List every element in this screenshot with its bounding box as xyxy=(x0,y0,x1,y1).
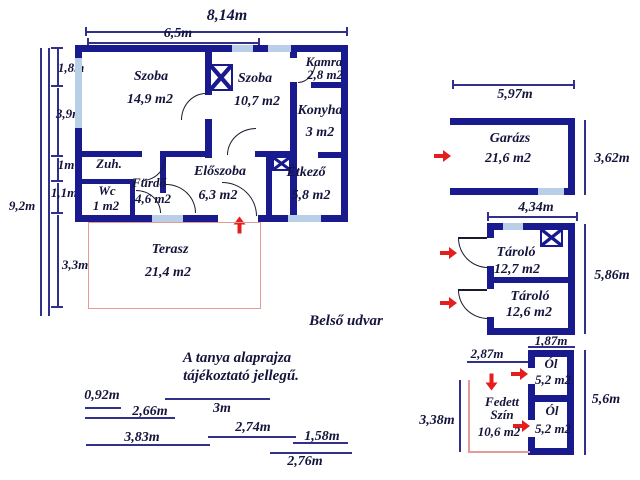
room-area: 5,8 m2 xyxy=(292,189,331,204)
dim-line xyxy=(165,398,270,400)
window xyxy=(75,58,82,128)
dim-tick xyxy=(85,27,87,36)
entrance-arrow-icon xyxy=(440,247,457,259)
site-dim: 2,76m xyxy=(287,455,322,470)
dim-line xyxy=(85,407,121,409)
dim-line xyxy=(270,452,352,454)
dim-line xyxy=(86,444,210,446)
dim-tick xyxy=(51,85,63,87)
door-arc xyxy=(458,238,488,268)
shed-height-dim: 3,38m xyxy=(419,414,454,429)
storage-wall-middle xyxy=(494,277,568,283)
chimney-icon xyxy=(540,228,563,247)
dim-line xyxy=(87,42,260,44)
dim-width-total: 8,14m xyxy=(207,8,247,25)
room-area: 5,2 m2 xyxy=(535,422,571,436)
dim-left-seg: 3,3m xyxy=(62,258,88,272)
door-arc xyxy=(227,128,256,155)
dim-line xyxy=(584,120,586,195)
dim-tick xyxy=(346,27,348,36)
dim-tick xyxy=(51,306,63,308)
room-area: 1 m2 xyxy=(93,199,119,213)
dim-line xyxy=(85,417,175,419)
dim-left-seg: 1,1m xyxy=(51,186,77,200)
note-line2: tájékoztató jellegű. xyxy=(183,369,299,385)
room-label: Zuh. xyxy=(96,157,122,171)
garage-height-dim: 3,62m xyxy=(594,152,629,167)
storage-wall-left xyxy=(487,266,494,289)
floor-plan: 8,14m 6,5m 9,2m 1,8m 3,9m 1m 1,1m 3,3m xyxy=(0,0,640,480)
room-label: Garázs xyxy=(490,132,530,147)
garage-width-dim: 5,97m xyxy=(497,88,532,103)
shed-outline xyxy=(468,451,530,453)
dim-line xyxy=(85,31,348,33)
dim-line xyxy=(208,436,296,438)
storage-height-dim: 5,86m xyxy=(594,269,629,284)
dim-line xyxy=(40,48,42,316)
courtyard-label: Belső udvar xyxy=(309,314,383,330)
window xyxy=(288,215,321,222)
wall-konyha-bottom xyxy=(318,152,341,158)
room-area: 6,3 m2 xyxy=(199,189,238,204)
window xyxy=(538,188,564,195)
dim-line xyxy=(48,48,50,316)
dim-height-total: 9,2m xyxy=(9,199,35,213)
entrance-arrow-icon xyxy=(511,368,528,380)
site-dim: 3m xyxy=(213,402,231,417)
room-label: Szoba xyxy=(238,72,272,87)
door-arc xyxy=(458,290,488,319)
room-label: Étkező xyxy=(287,166,326,181)
storage-width-dim: 4,34m xyxy=(518,201,553,216)
coop-wall-middle xyxy=(535,395,567,402)
room-area: 3 m2 xyxy=(306,126,334,141)
wall-bottom xyxy=(75,215,152,222)
room-area: 10,7 m2 xyxy=(234,95,280,110)
coop-wall-bottom xyxy=(528,448,574,455)
wall-kamra-bottom xyxy=(311,82,341,88)
chimney-icon xyxy=(209,64,233,91)
wall-interior xyxy=(290,52,297,58)
wall-interior xyxy=(165,151,212,157)
shed-width-dim: 2,87m xyxy=(471,347,504,361)
wall-top xyxy=(75,45,348,52)
storage-wall-left xyxy=(487,223,494,238)
room-label: Konyha xyxy=(297,104,342,119)
entrance-arrow-icon xyxy=(440,297,457,309)
dim-line xyxy=(584,224,586,334)
dim-line xyxy=(467,361,534,363)
storage-wall-right xyxy=(568,223,575,335)
room-area: 21,4 m2 xyxy=(145,266,191,281)
dim-line xyxy=(452,84,575,86)
garage-wall-right xyxy=(568,125,575,195)
dim-tick xyxy=(573,80,575,89)
room-label: Ól xyxy=(545,357,558,371)
entrance-arrow-icon xyxy=(434,150,451,162)
room-label: Szín xyxy=(490,408,513,422)
dim-width-inner: 6,5m xyxy=(164,27,192,42)
wall-bottom xyxy=(321,215,348,222)
dim-line xyxy=(57,215,59,307)
dim-tick xyxy=(51,180,63,182)
room-area: 10,6 m2 xyxy=(478,425,521,439)
garage-wall-top xyxy=(450,118,575,125)
dim-line xyxy=(528,346,575,348)
room-label: Tároló xyxy=(497,246,536,261)
dim-line xyxy=(584,350,586,455)
room-label: Szoba xyxy=(134,70,168,85)
room-label: Terasz xyxy=(152,243,189,258)
coop-wall-left xyxy=(528,350,535,368)
dim-tick xyxy=(51,212,63,214)
room-area: 21,6 m2 xyxy=(485,152,531,167)
coop-wall-right xyxy=(567,350,574,455)
room-area: 12,7 m2 xyxy=(494,263,540,278)
room-area: 2,8 m2 xyxy=(307,68,343,82)
window xyxy=(503,223,523,230)
room-area: 5,2 m2 xyxy=(535,373,571,387)
door-arc xyxy=(181,93,206,120)
dim-tick xyxy=(487,212,489,221)
room-label: Wc xyxy=(98,184,115,198)
dim-line xyxy=(487,216,578,218)
room-area: 4,6 m2 xyxy=(135,192,171,206)
window xyxy=(232,45,253,52)
dim-line xyxy=(459,380,461,452)
site-dim: 0,92m xyxy=(84,389,119,404)
coop-wall-left xyxy=(528,384,535,420)
room-label: Fürdő xyxy=(132,176,166,190)
room-label: Ól xyxy=(546,404,559,418)
note-line1: A tanya alaprajza xyxy=(183,351,291,367)
room-area: 12,6 m2 xyxy=(506,306,552,321)
room-area: 14,9 m2 xyxy=(127,93,173,108)
dim-line xyxy=(57,88,59,155)
dim-tick xyxy=(51,47,63,49)
shed-outline xyxy=(468,380,470,452)
entrance-arrow-icon xyxy=(486,374,498,391)
dim-tick xyxy=(576,212,578,221)
wall-bottom xyxy=(183,215,218,222)
dim-tick xyxy=(452,80,454,89)
room-label: Tároló xyxy=(511,290,550,305)
window xyxy=(268,45,291,52)
coop-height-dim: 5,6m xyxy=(592,393,620,408)
dim-left-seg: 1m xyxy=(58,158,75,172)
site-dim: 2,74m xyxy=(235,421,270,436)
room-label: Előszoba xyxy=(194,165,246,180)
wall-bottom xyxy=(258,215,289,222)
dim-line xyxy=(293,442,348,444)
window xyxy=(152,215,183,222)
